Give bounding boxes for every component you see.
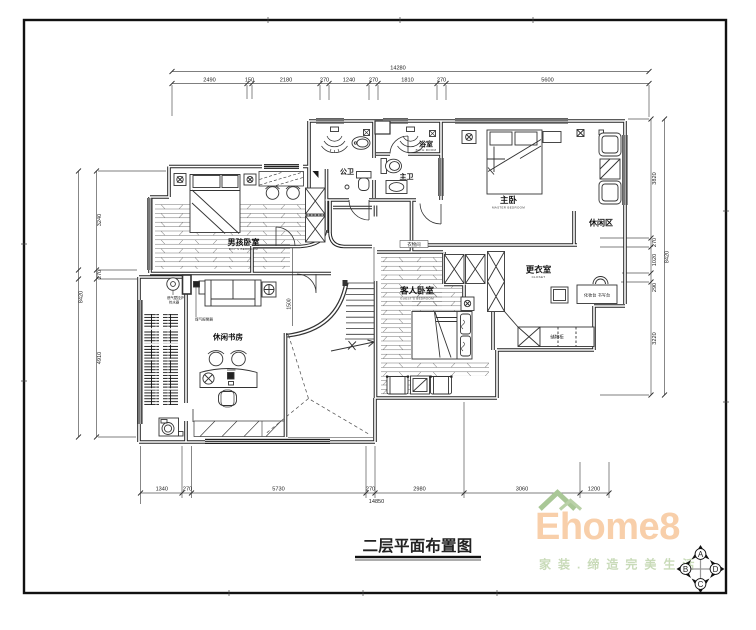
svg-text:290: 290: [652, 283, 658, 292]
svg-text:1500: 1500: [287, 298, 293, 309]
svg-text:14850: 14850: [369, 499, 385, 505]
svg-text:B: B: [683, 565, 688, 574]
svg-text:14280: 14280: [390, 66, 406, 72]
svg-text:A: A: [698, 550, 704, 559]
svg-text:3220: 3220: [652, 332, 658, 344]
svg-text:1020: 1020: [652, 254, 658, 266]
svg-text:BATH ROOM: BATH ROOM: [416, 148, 437, 152]
svg-text:1240: 1240: [343, 78, 355, 84]
svg-text:3060: 3060: [516, 487, 528, 493]
svg-text:8420: 8420: [665, 251, 671, 263]
svg-text:化妆台 书写台: 化妆台 书写台: [584, 292, 610, 299]
svg-text:2490: 2490: [203, 78, 215, 84]
svg-text:Ehome8: Ehome8: [535, 506, 680, 548]
svg-text:储物柜: 储物柜: [550, 334, 564, 341]
svg-text:2980: 2980: [413, 487, 425, 493]
svg-text:8420: 8420: [79, 291, 85, 303]
svg-text:煤气报警器: 煤气报警器: [195, 317, 213, 322]
svg-text:1810: 1810: [401, 78, 413, 84]
svg-text:2180: 2180: [280, 78, 292, 84]
svg-text:4910: 4910: [97, 352, 103, 364]
svg-text:客人卧室: 客人卧室: [399, 286, 435, 296]
svg-text:CLOSET: CLOSET: [532, 275, 546, 279]
svg-text:主卧: 主卧: [500, 195, 518, 205]
svg-text:270: 270: [369, 78, 378, 84]
svg-text:270: 270: [366, 487, 375, 493]
svg-text:5730: 5730: [272, 487, 284, 493]
svg-text:二层平面布置图: 二层平面布置图: [363, 536, 473, 555]
svg-text:1200: 1200: [588, 487, 600, 493]
svg-text:3240: 3240: [97, 214, 103, 226]
svg-text:男孩卧室: 男孩卧室: [228, 237, 260, 247]
svg-text:BOY'S BEDROOM: BOY'S BEDROOM: [229, 247, 258, 251]
svg-text:270: 270: [437, 78, 446, 84]
svg-text:D: D: [713, 565, 719, 574]
svg-text:150: 150: [245, 78, 254, 84]
svg-text:MASTER BEDROOM: MASTER BEDROOM: [492, 206, 525, 210]
svg-text:270: 270: [97, 270, 103, 279]
svg-text:热水器: 热水器: [169, 300, 180, 305]
svg-text:GUEST'S BEDROOM: GUEST'S BEDROOM: [400, 297, 434, 301]
svg-text:衣物间: 衣物间: [407, 241, 420, 248]
svg-text:1340: 1340: [156, 487, 168, 493]
svg-text:休闲区: 休闲区: [588, 218, 613, 228]
svg-text:更衣室: 更衣室: [526, 265, 552, 275]
svg-text:燃气壁挂炉: 燃气壁挂炉: [167, 295, 185, 300]
svg-text:休闲书房: 休闲书房: [212, 332, 243, 342]
svg-text:270: 270: [320, 78, 329, 84]
svg-text:5600: 5600: [541, 78, 553, 84]
svg-text:3820: 3820: [652, 172, 658, 184]
svg-text:270: 270: [652, 238, 658, 247]
svg-text:主卫: 主卫: [400, 172, 414, 181]
svg-text:C: C: [698, 580, 704, 589]
svg-text:270: 270: [183, 487, 192, 493]
svg-text:公卫: 公卫: [340, 168, 354, 176]
